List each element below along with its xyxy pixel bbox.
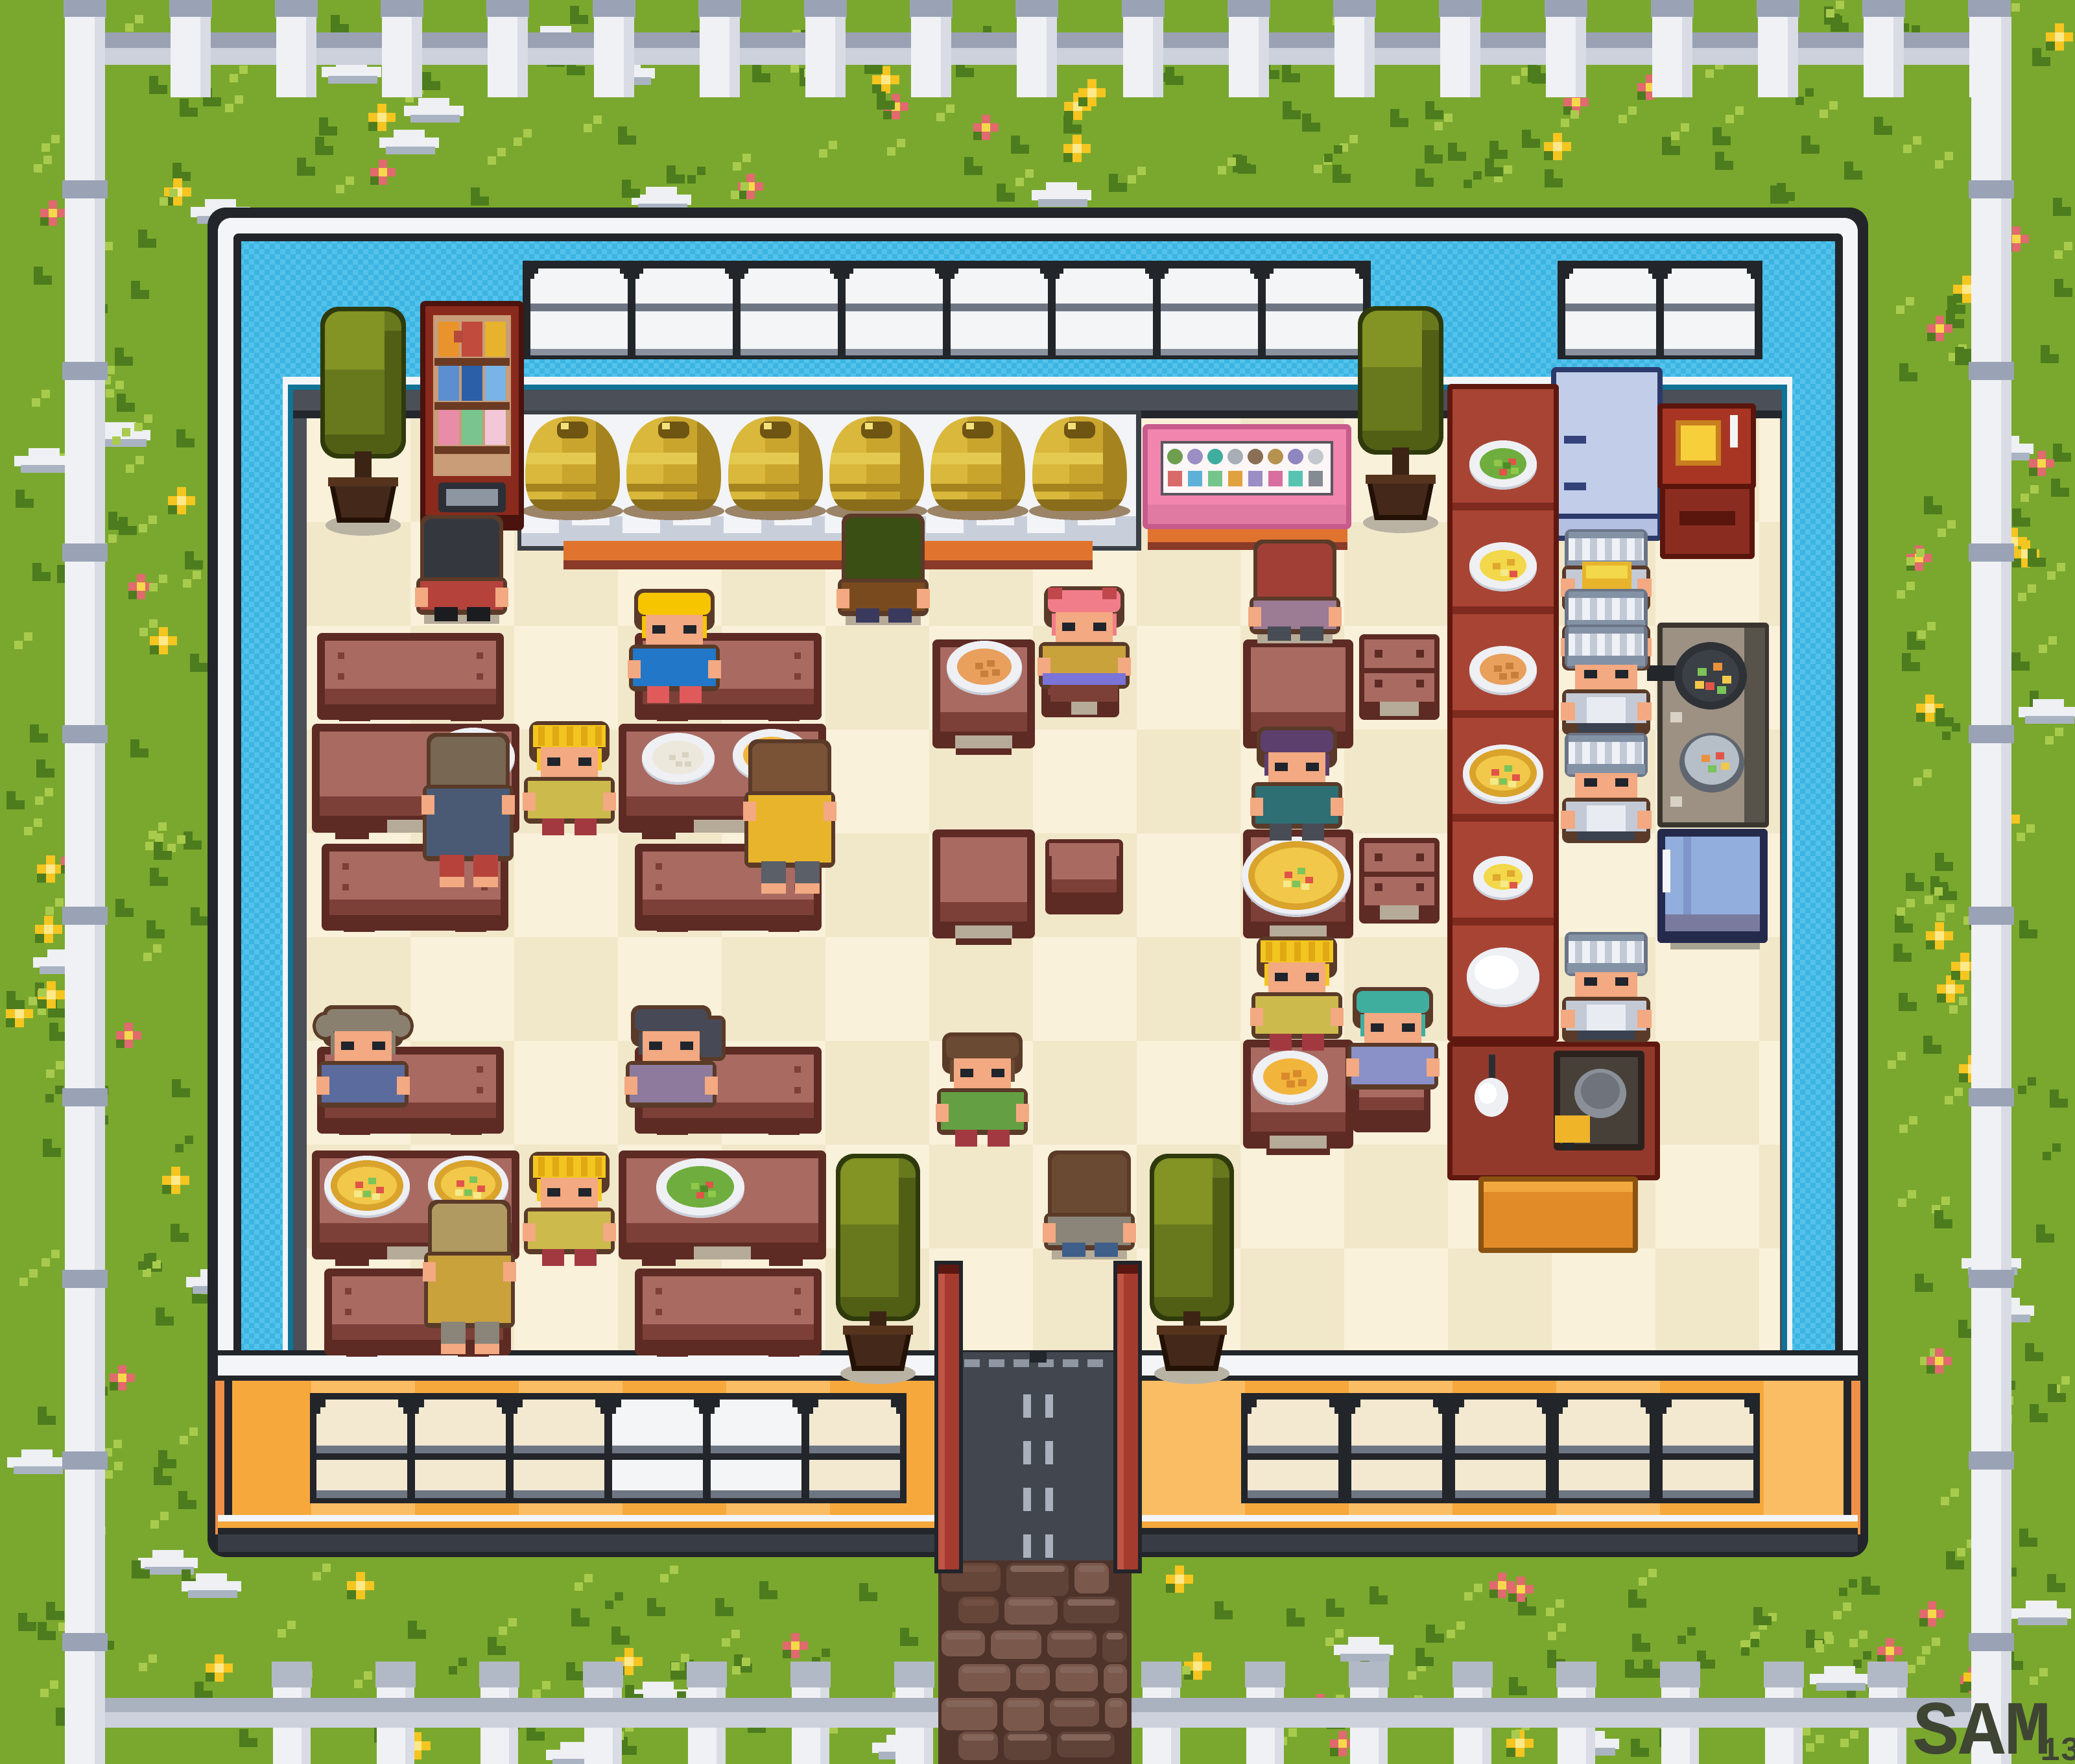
- svg-text:SAM: SAM: [1913, 1691, 2050, 1764]
- svg-text:13: 13: [2040, 1732, 2075, 1764]
